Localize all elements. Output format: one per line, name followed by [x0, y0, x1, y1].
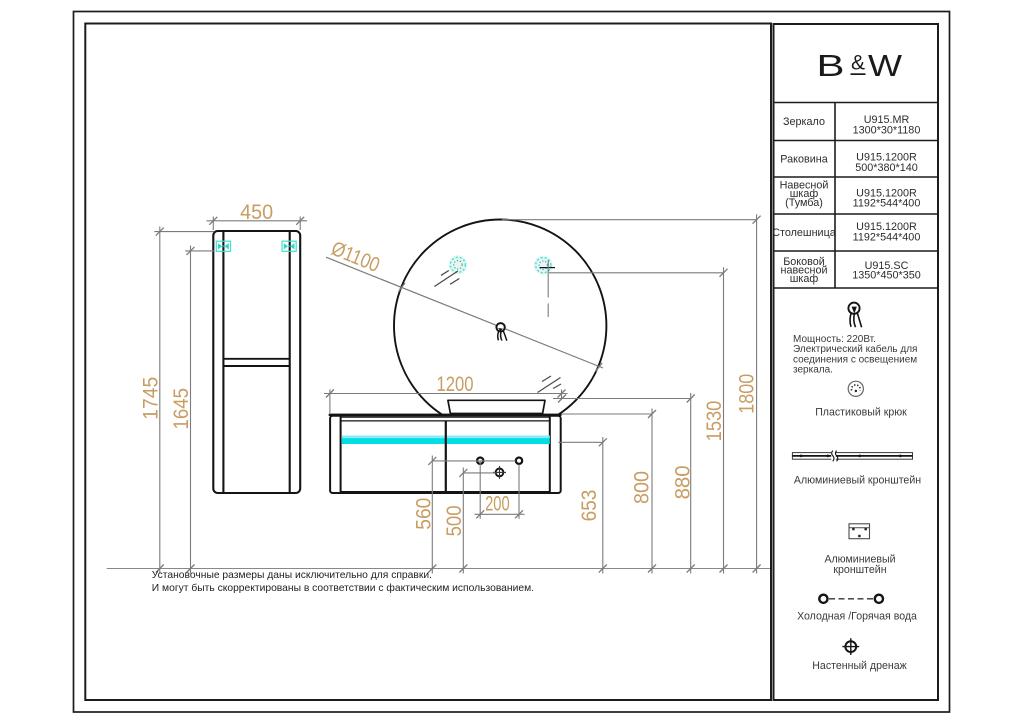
svg-text:Установочные размеры даны искл: Установочные размеры даны исключительно …	[152, 570, 432, 581]
svg-text:1800: 1800	[736, 374, 759, 414]
svg-text:800: 800	[631, 471, 654, 504]
svg-text:шкаф: шкаф	[790, 273, 819, 285]
svg-text:1745: 1745	[139, 377, 162, 420]
svg-text:И могут быть скорректированы в: И могут быть скорректированы в соответст…	[152, 582, 534, 594]
svg-text:653: 653	[578, 490, 601, 522]
svg-text:W: W	[868, 48, 903, 83]
svg-text:500: 500	[443, 505, 466, 536]
svg-text:560: 560	[413, 498, 436, 530]
svg-text:450: 450	[240, 201, 273, 224]
svg-text:Холодная /Горячая вода: Холодная /Горячая вода	[797, 611, 917, 623]
svg-text:1645: 1645	[170, 388, 193, 430]
svg-text:кронштейн: кронштейн	[833, 564, 886, 576]
svg-text:1530: 1530	[703, 401, 726, 442]
svg-text:1200: 1200	[437, 373, 474, 396]
svg-text:Столешница: Столешница	[772, 227, 836, 239]
svg-text:Раковина: Раковина	[780, 153, 827, 165]
svg-text:1350*450*350: 1350*450*350	[852, 270, 920, 282]
svg-text:(Тумба): (Тумба)	[785, 197, 823, 209]
svg-text:1192*544*400: 1192*544*400	[853, 232, 921, 244]
svg-text:200: 200	[485, 493, 510, 516]
svg-text:880: 880	[671, 465, 694, 499]
svg-text:Алюминиевый кронштейн: Алюминиевый кронштейн	[794, 474, 921, 486]
svg-text:Пластиковый крюк: Пластиковый крюк	[815, 406, 907, 418]
svg-text:500*380*140: 500*380*140	[855, 162, 917, 174]
svg-text:зеркала.: зеркала.	[793, 364, 833, 375]
svg-text:B: B	[817, 48, 845, 83]
svg-text:1300*30*1180: 1300*30*1180	[853, 125, 921, 137]
svg-text:Электрический кабель для: Электрический кабель для	[793, 343, 917, 355]
svg-text:&: &	[851, 51, 865, 74]
svg-text:Зеркало: Зеркало	[783, 116, 825, 128]
svg-text:Настенный дренаж: Настенный дренаж	[812, 660, 907, 672]
svg-text:1192*544*400: 1192*544*400	[853, 198, 921, 210]
